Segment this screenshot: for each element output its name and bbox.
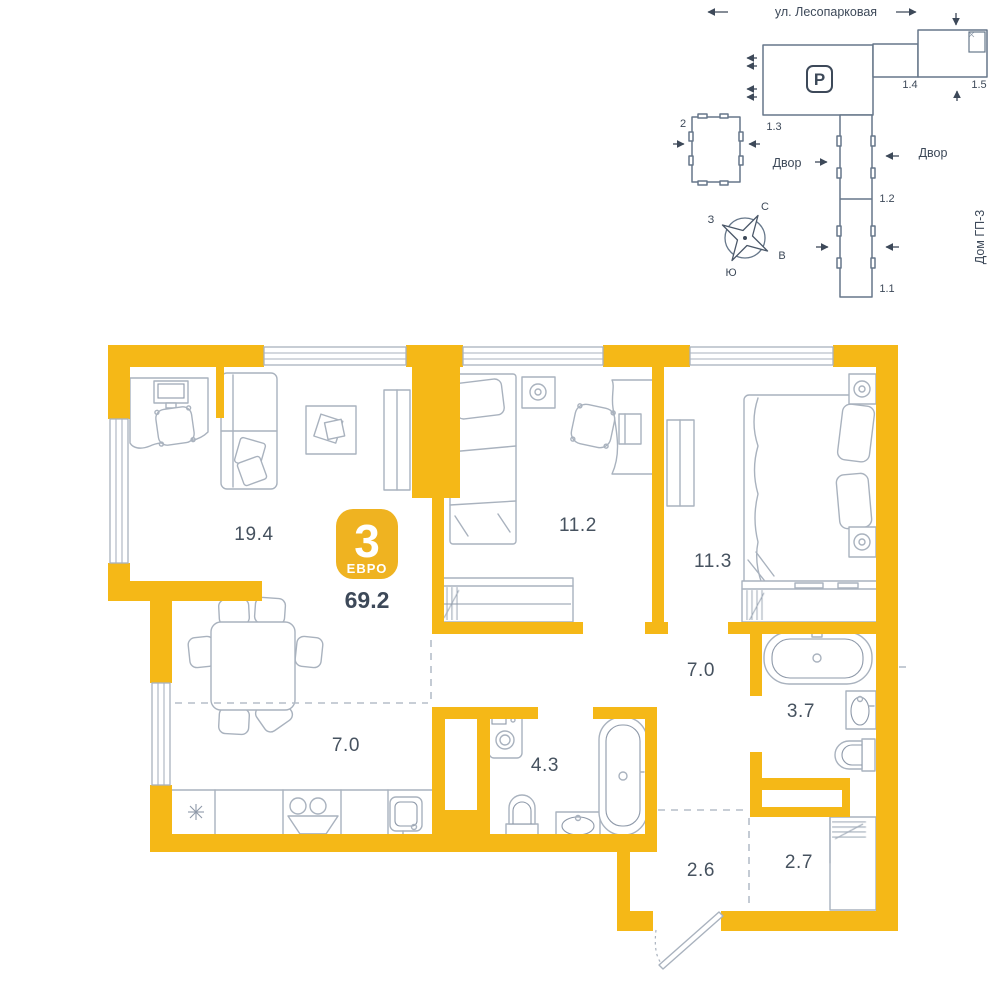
fridge-snowflake-icon bbox=[188, 804, 204, 820]
room-label-living: 19.4 bbox=[234, 524, 273, 545]
ceiling-light-icon bbox=[522, 377, 555, 408]
room-label-hall: 2.6 bbox=[687, 860, 715, 881]
ceiling-light-icon bbox=[849, 374, 876, 404]
bedroom-desk-icon bbox=[612, 380, 655, 474]
dining-set-icon bbox=[188, 597, 324, 735]
compass-icon: С З В Ю bbox=[708, 201, 786, 279]
room-label-kitchen: 7.0 bbox=[332, 735, 360, 756]
compass-south: Ю bbox=[725, 267, 736, 279]
room-label-bathroom-small: 3.7 bbox=[787, 701, 815, 722]
washing-machine-icon bbox=[489, 714, 522, 758]
compass-north: С bbox=[761, 201, 769, 213]
courtyard-right-label: Двор bbox=[919, 146, 948, 160]
bedroom-chair-icon bbox=[569, 402, 616, 449]
entrance-door-icon bbox=[655, 912, 723, 969]
total-area-label: 69.2 bbox=[345, 587, 390, 613]
floor-plan: 19.4 7.0 11.2 11.3 7.0 4.3 3.7 2.6 2.7 3… bbox=[108, 345, 911, 969]
compass-east: В bbox=[778, 250, 785, 262]
double-bed-icon bbox=[744, 395, 877, 587]
wardrobe-icon bbox=[742, 581, 877, 622]
floorplan-svg: ул. Лесопарковая P 1.3 1.4 1.5 bbox=[0, 0, 1000, 1000]
window-icon bbox=[463, 347, 603, 365]
house-gp3-label: Дом ГП-3 bbox=[973, 210, 987, 265]
stove-icon bbox=[288, 798, 338, 834]
wardrobe-icon bbox=[437, 578, 573, 622]
badge-type-label: ЕВРО bbox=[347, 561, 388, 576]
kitchen-counter-icon bbox=[172, 790, 432, 841]
building-14-15: 1.4 1.5 bbox=[873, 13, 987, 101]
room-label-hallway: 7.0 bbox=[687, 660, 715, 681]
chair-icon bbox=[155, 406, 196, 447]
site-plan: ул. Лесопарковая P 1.3 1.4 1.5 bbox=[673, 5, 987, 297]
courtyard-left-label: Двор bbox=[773, 156, 802, 170]
parking-letter: P bbox=[814, 70, 825, 89]
building-12-label: 1.2 bbox=[879, 193, 894, 205]
sofa-icon bbox=[221, 373, 277, 489]
bathtub-icon bbox=[599, 717, 647, 835]
building-14-label: 1.4 bbox=[902, 79, 917, 91]
window-icon bbox=[690, 347, 833, 365]
subject-apartment-marker bbox=[969, 32, 985, 52]
apartment-badge: 3 ЕВРО 69.2 bbox=[336, 509, 398, 613]
closet-wardrobe-icon bbox=[830, 817, 876, 910]
ceiling-light-icon bbox=[849, 527, 876, 557]
room-label-bathroom-big: 4.3 bbox=[531, 755, 559, 776]
building-12-11: 1.2 1.1 bbox=[816, 115, 899, 297]
hall-cabinet-icon bbox=[667, 420, 694, 506]
building-11-label: 1.1 bbox=[879, 283, 894, 295]
toilet-icon bbox=[506, 795, 538, 836]
bathroom-sink-icon bbox=[846, 691, 876, 729]
window-icon bbox=[152, 683, 170, 785]
window-icon bbox=[110, 419, 128, 563]
street-label: ул. Лесопарковая bbox=[775, 5, 877, 19]
compass-west: З bbox=[708, 214, 715, 226]
cabinet-icon bbox=[384, 390, 410, 490]
room-label-bedroom1: 11.2 bbox=[559, 515, 597, 536]
coffee-table-icon bbox=[306, 406, 356, 454]
building-13-label: 1.3 bbox=[766, 121, 781, 133]
room-label-closet: 2.7 bbox=[785, 852, 813, 873]
bathtub-icon bbox=[764, 632, 872, 684]
window-icon bbox=[264, 347, 406, 365]
badge-rooms-count: 3 bbox=[354, 515, 380, 567]
floorplan-page: ул. Лесопарковая P 1.3 1.4 1.5 bbox=[0, 0, 1000, 1000]
building-2-label: 2 bbox=[680, 118, 686, 130]
room-label-bedroom2: 11.3 bbox=[694, 551, 732, 572]
building-2: 2 bbox=[673, 114, 760, 185]
building-15-label: 1.5 bbox=[971, 79, 986, 91]
toilet-icon bbox=[835, 739, 875, 771]
